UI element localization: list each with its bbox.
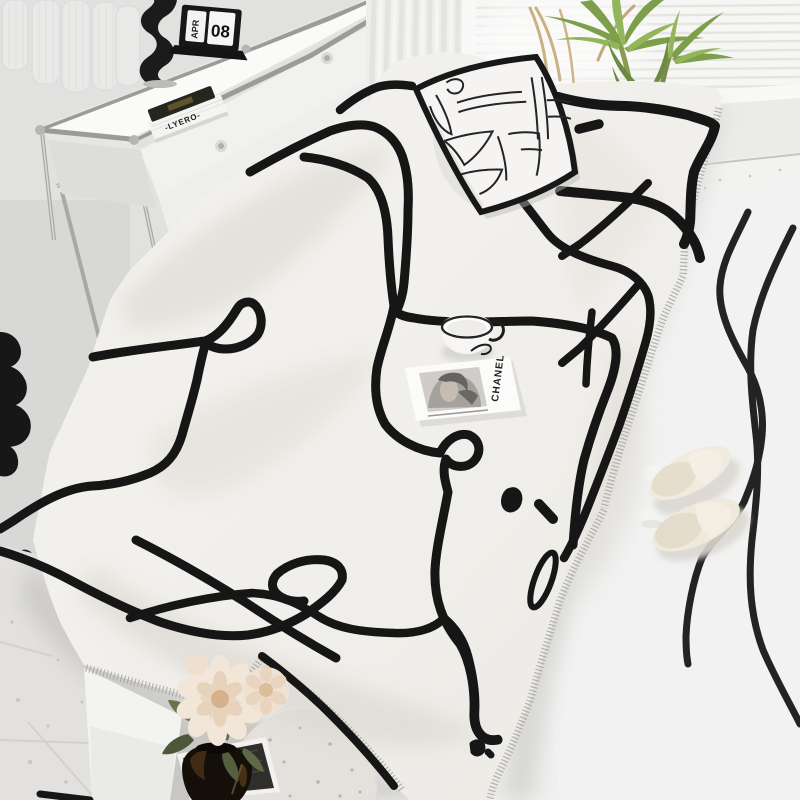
svg-text:APR: APR [189,19,201,39]
svg-text:08: 08 [210,21,231,42]
